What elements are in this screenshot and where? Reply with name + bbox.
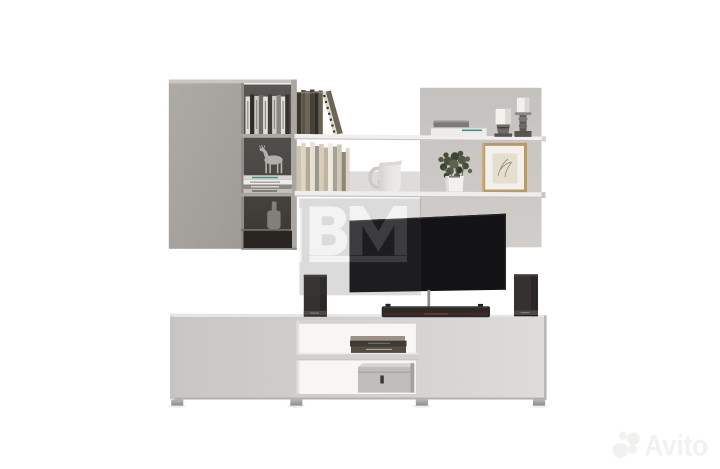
svg-text:Avito: Avito xyxy=(645,429,709,462)
